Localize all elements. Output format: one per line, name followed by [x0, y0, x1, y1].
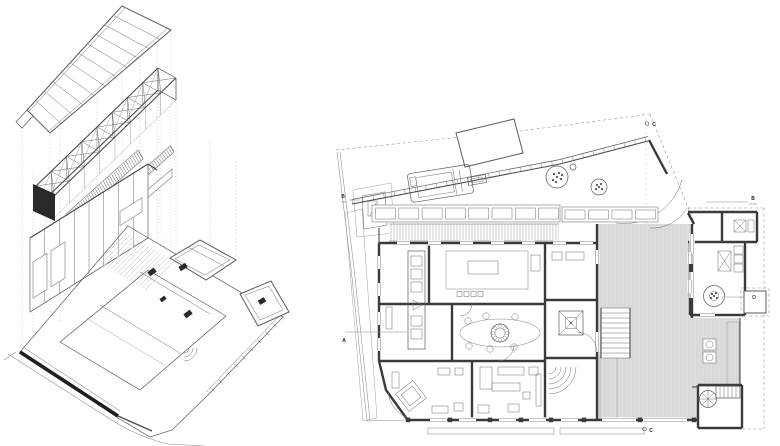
section-marker-a-left: A	[342, 338, 346, 344]
parked-car	[407, 164, 474, 202]
roof-yard	[352, 119, 694, 241]
architectural-drawing-sheet: B A C B A C	[0, 0, 780, 446]
section-markers: B A C B A C	[341, 122, 769, 434]
section-marker-b-left: B	[341, 194, 345, 200]
exploded-axonometric-drawing	[4, 6, 388, 446]
roof-plane	[16, 6, 171, 133]
section-marker-b-right: B	[751, 196, 755, 202]
section-marker-c-bottom: C	[649, 428, 653, 434]
ground-line	[4, 352, 205, 446]
section-marker-c-top: C	[652, 122, 656, 128]
floor-plan-drawing: B A C B A C	[336, 114, 769, 434]
facade-wall-band	[30, 164, 157, 312]
